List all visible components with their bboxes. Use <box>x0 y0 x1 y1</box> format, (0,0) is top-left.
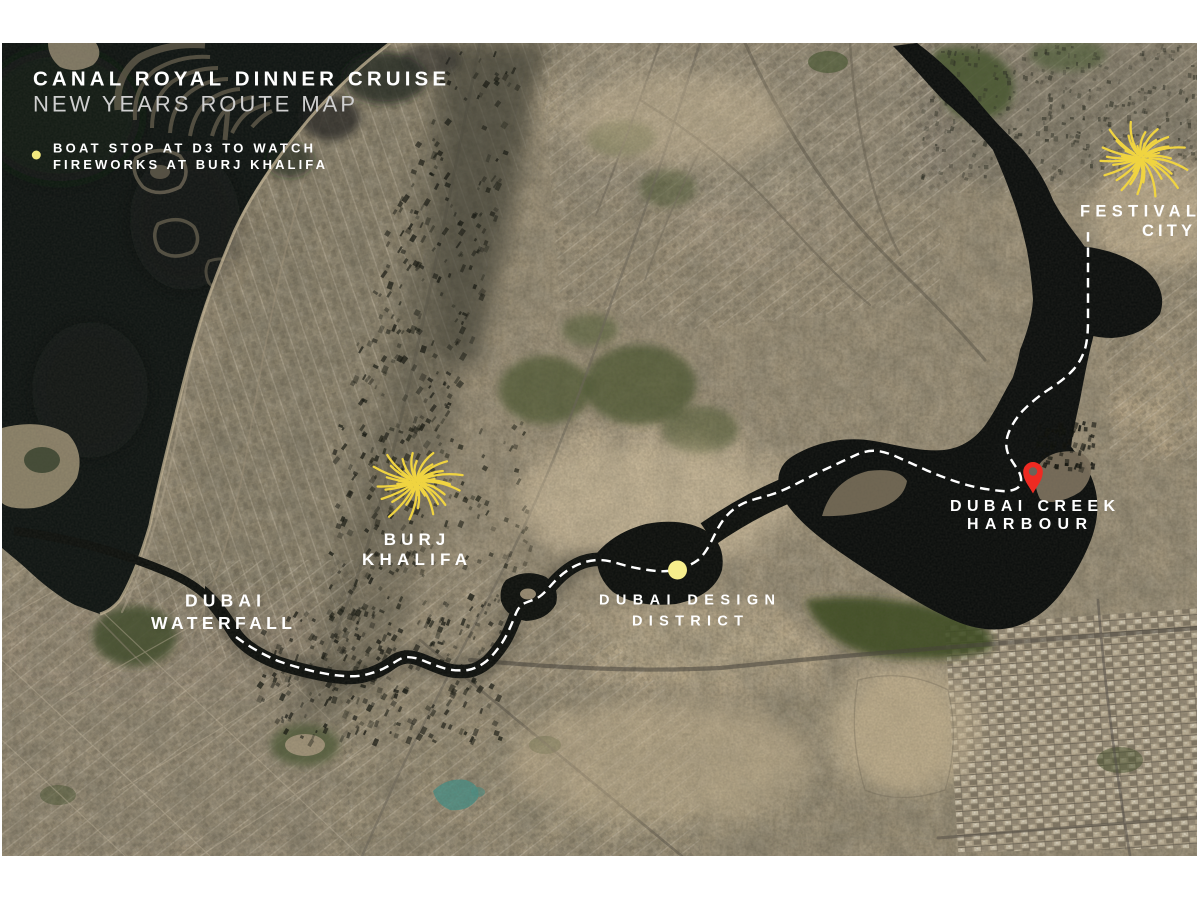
svg-text:DUBAI DESIGN: DUBAI DESIGN <box>599 593 775 609</box>
svg-text:FESTIVAL: FESTIVAL <box>1080 203 1196 221</box>
svg-text:DUBAI: DUBAI <box>185 590 261 610</box>
svg-text:WATERFALL: WATERFALL <box>151 613 292 633</box>
svg-text:NEW YEARS ROUTE MAP: NEW YEARS ROUTE MAP <box>33 91 355 116</box>
svg-text:CITY: CITY <box>1142 222 1192 240</box>
